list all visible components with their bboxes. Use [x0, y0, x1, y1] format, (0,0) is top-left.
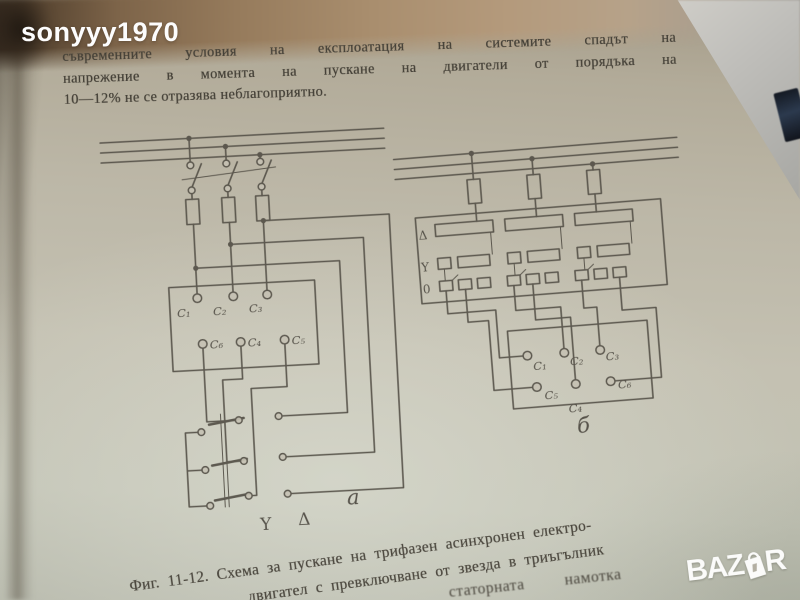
star-position-label: Y — [259, 515, 273, 536]
terminal-label: C₄ — [247, 335, 262, 350]
motor-terminal-box: C₁ C₂ C₃ C₆ C₄ C₅ — [169, 280, 319, 372]
terminal-label: C₅ — [544, 387, 559, 402]
winding-wires — [446, 275, 661, 394]
terminal-label: C₃ — [605, 348, 620, 363]
delta-position-label: Δ — [298, 510, 311, 531]
bus-lines — [100, 126, 385, 166]
terminal-label: C₃ — [249, 301, 264, 316]
terminal-label: C₂ — [569, 353, 584, 368]
motor-terminal-box: C₁ C₂ C₃ C₅ C₄ C₆ — [507, 320, 654, 420]
book-gutter-shadow — [4, 40, 34, 600]
row-label-star: Y — [420, 260, 431, 275]
bazar-logo-text-right: R — [763, 543, 787, 579]
cam-switch-box: Δ Y 0 — [415, 199, 667, 304]
row-label-zero: 0 — [422, 282, 431, 297]
row-label-delta: Δ — [418, 228, 428, 243]
figure-diagram-b: Δ Y 0 C₁ C₂ — [383, 105, 709, 467]
star-delta-switch: Y Δ — [184, 410, 311, 539]
figure-diagram-a: C₁ C₂ C₃ C₆ C₄ C₅ Y Δ а — [93, 108, 425, 549]
diagram-b-label: б — [576, 413, 591, 438]
terminal-label: C₆ — [617, 377, 632, 392]
watermark-username: sonyyy1970 — [21, 17, 179, 48]
terminal-label: C₅ — [291, 333, 306, 348]
book-page-photo: съвременните условия на експлоатация на … — [0, 0, 800, 600]
terminal-label: C₂ — [213, 304, 228, 319]
terminal-label: C₁ — [177, 306, 191, 321]
diagram-a-label: а — [346, 485, 360, 510]
terminal-label: C₆ — [209, 337, 224, 352]
terminal-label: C₁ — [533, 358, 547, 373]
bazar-logo-text-left: BAZ — [684, 548, 745, 589]
